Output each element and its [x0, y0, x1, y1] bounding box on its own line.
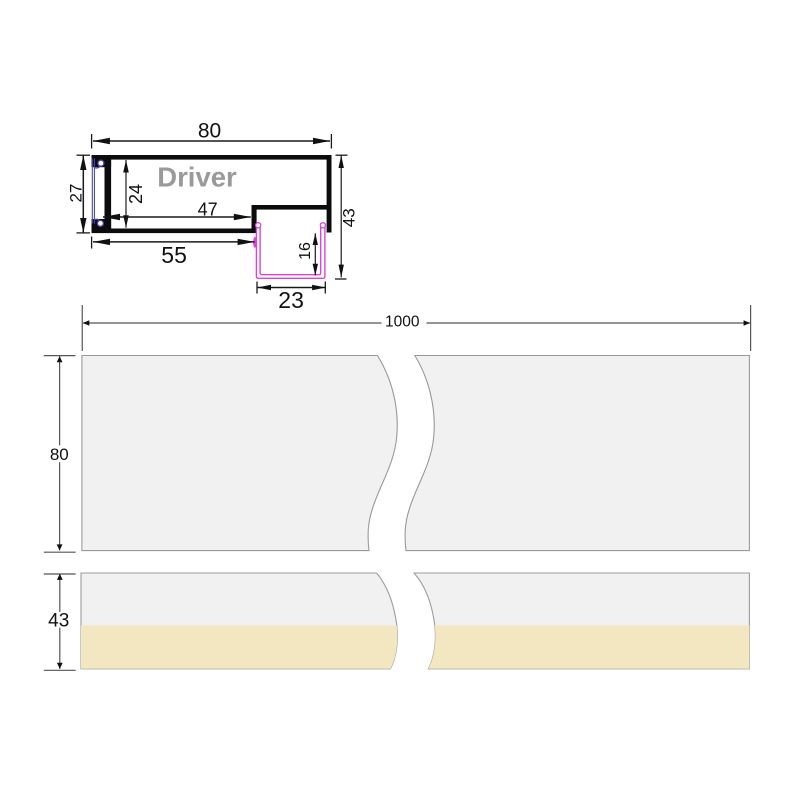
svg-text:47: 47 — [198, 199, 218, 219]
svg-text:Driver: Driver — [157, 162, 237, 193]
svg-text:23: 23 — [278, 287, 304, 313]
svg-text:1000: 1000 — [385, 314, 420, 331]
svg-text:55: 55 — [161, 242, 187, 268]
svg-text:43: 43 — [48, 611, 69, 632]
svg-text:24: 24 — [126, 184, 146, 204]
svg-text:16: 16 — [297, 242, 314, 260]
svg-text:27: 27 — [67, 184, 86, 203]
svg-text:80: 80 — [198, 119, 221, 142]
svg-text:43: 43 — [339, 208, 358, 227]
svg-text:80: 80 — [50, 445, 69, 464]
